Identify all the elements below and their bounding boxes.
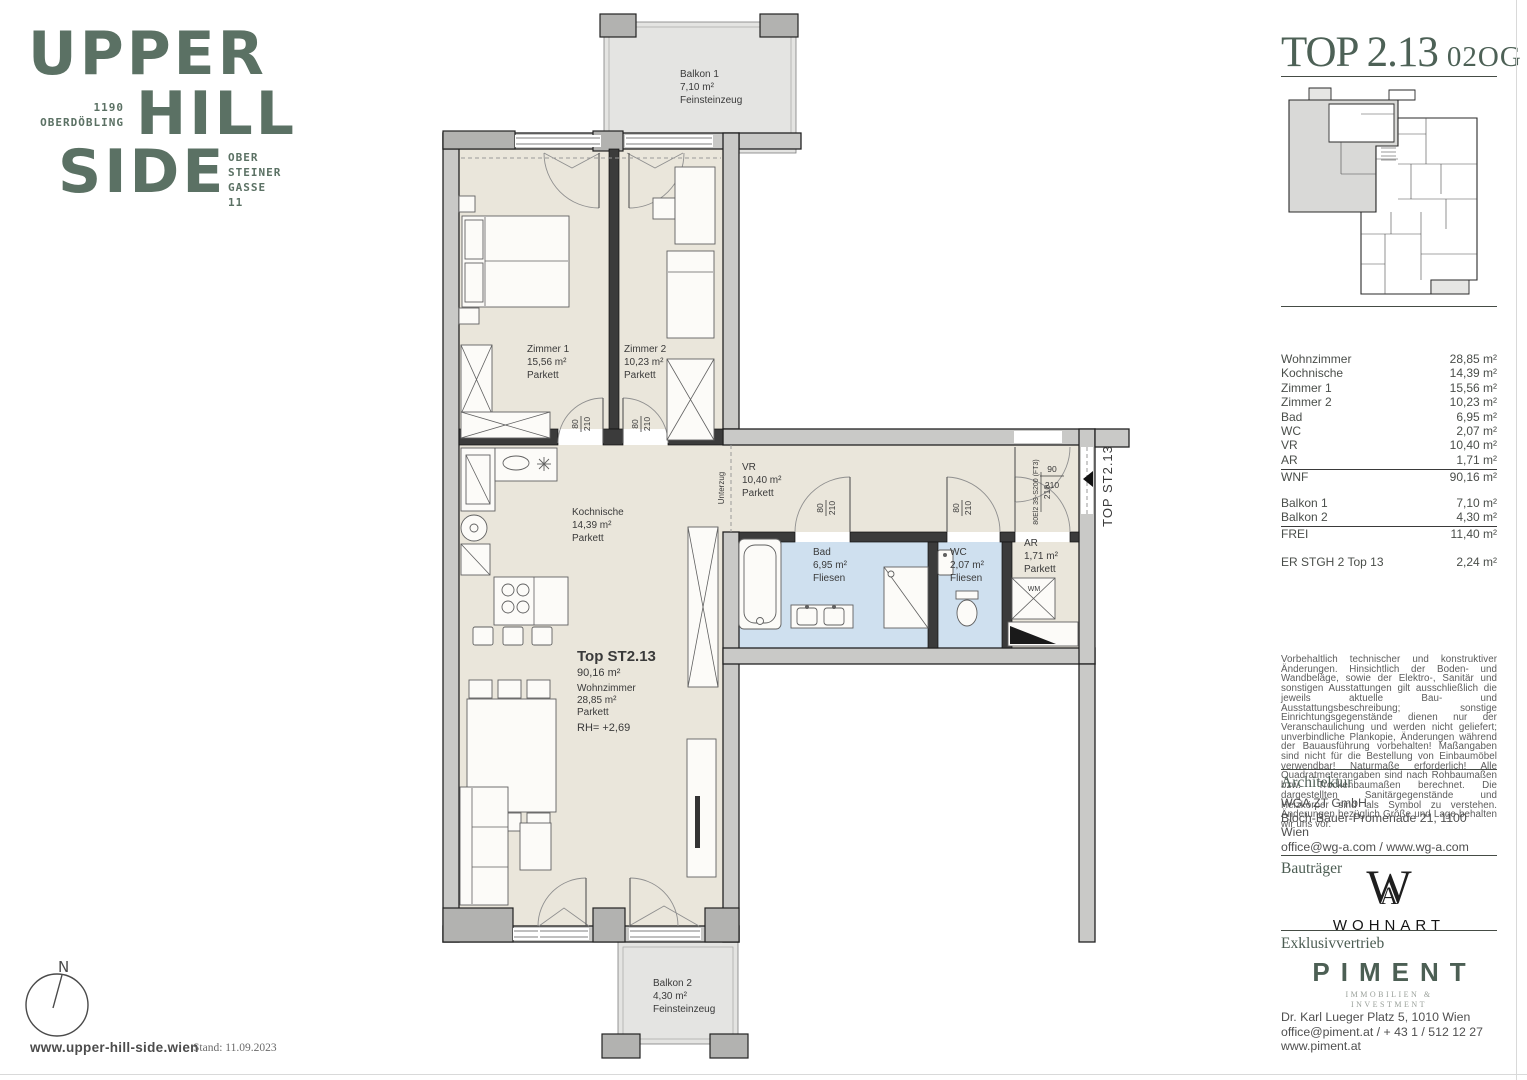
- svg-text:2,07 m²: 2,07 m²: [950, 560, 985, 571]
- plan-date: Stand: 11.09.2023: [193, 1042, 277, 1054]
- architektur-heading: Architektur: [1281, 774, 1352, 792]
- tv-icon: [695, 796, 700, 848]
- vertrieb-heading: Exklusivvertrieb: [1281, 935, 1384, 953]
- brand-address: OBER STEINER GASSE 11: [228, 150, 281, 210]
- cabinet-icon: [675, 167, 715, 244]
- divider: [1281, 855, 1497, 856]
- piment-contact: Dr. Karl Lueger Platz 5, 1010 Wien offic…: [1281, 1010, 1497, 1054]
- burner-icon: [502, 584, 514, 596]
- divider: [1281, 76, 1497, 77]
- svg-text:Parkett: Parkett: [742, 488, 774, 499]
- divider: [1281, 769, 1497, 770]
- brand-word-upper: UPPER: [28, 24, 267, 84]
- zimmer2-label: Zimmer 2: [624, 344, 667, 355]
- kochnische-label: Kochnische: [572, 507, 624, 518]
- compass-needle-icon: [53, 975, 62, 1008]
- table-row: AR1,71 m²: [1281, 453, 1497, 467]
- svg-text:Top ST2.13: Top ST2.13: [577, 648, 656, 665]
- page-edge: [0, 1074, 1527, 1075]
- chair-icon: [527, 680, 550, 698]
- svg-text:6,95 m²: 6,95 m²: [813, 560, 848, 571]
- svg-text:Wohnzimmer: Wohnzimmer: [577, 683, 636, 694]
- sofa-icon: [460, 787, 508, 905]
- burner-icon: [517, 584, 529, 596]
- page-edge: [1516, 0, 1517, 1080]
- tv-board-icon: [687, 739, 716, 877]
- shelf-icon: [653, 198, 675, 219]
- burner-icon: [502, 601, 514, 613]
- svg-text:RH= +2,69: RH= +2,69: [577, 722, 630, 734]
- table-row: Balkon 17,10 m²: [1281, 496, 1497, 510]
- info-panel: TOP 2.1302OG: [1281, 0, 1497, 1080]
- table-row: Balkon 24,30 m²: [1281, 510, 1497, 524]
- architektur-contact: office@wg-a.com / www.wg-a.com: [1281, 840, 1497, 855]
- svg-text:4,30 m²: 4,30 m²: [653, 991, 688, 1002]
- architektur-info: WGA ZT GmbH Bloch-Bauer-Promenade 21, 11…: [1281, 796, 1497, 854]
- stool-icon: [503, 627, 523, 645]
- svg-text:Unterzug: Unterzug: [717, 472, 726, 504]
- svg-text:TOP ST2.13: TOP ST2.13: [1100, 445, 1115, 527]
- cooktop-icon: [537, 457, 551, 471]
- wm-label: WM: [1028, 586, 1041, 593]
- wohnart-wordmark: WOHNART: [1281, 917, 1497, 934]
- bad-label: Bad: [813, 547, 831, 558]
- piment-phone: office@piment.at / + 43 1 / 512 12 27: [1281, 1025, 1497, 1040]
- nightstand-icon: [459, 308, 479, 324]
- svg-text:90: 90: [1047, 464, 1057, 474]
- wohnart-a-icon: A: [1380, 884, 1398, 909]
- coffee-table-icon: [520, 823, 551, 870]
- piment-wordmark: PIMENT: [1281, 958, 1497, 987]
- svg-text:14,39 m²: 14,39 m²: [572, 520, 612, 531]
- unterzug-label: Unterzug: [717, 472, 726, 504]
- table-row: VR10,40 m²: [1281, 438, 1497, 452]
- area-table: Wohnzimmer28,85 m² Kochnische14,39 m² Zi…: [1281, 352, 1497, 569]
- table-row-extra: ER STGH 2 Top 132,24 m²: [1281, 555, 1497, 569]
- piment-subline: INVESTMENT: [1281, 1000, 1497, 1010]
- chair-icon: [498, 680, 521, 698]
- divider: [1281, 306, 1497, 307]
- pillar-icon: [600, 14, 636, 37]
- burner-icon: [517, 601, 529, 613]
- svg-text:Parkett: Parkett: [577, 707, 609, 718]
- pillar-icon: [710, 1034, 748, 1058]
- website-link: www.upper-hill-side.wien: [30, 1040, 199, 1055]
- floorplan-sheet: UPPER HILL SIDE 1190 OBERDÖBLING OBER ST…: [0, 0, 1527, 1080]
- vr-label: VR: [742, 462, 756, 473]
- svg-text:28,85 m²: 28,85 m²: [577, 695, 617, 706]
- nightstand-icon: [459, 196, 475, 212]
- piment-subline: IMMOBILIEN &: [1281, 990, 1497, 1000]
- divider: [1281, 930, 1497, 931]
- svg-text:80El2 39-S200 (FT3): 80El2 39-S200 (FT3): [1033, 459, 1040, 524]
- entrance-tag: TOP ST2.13: [1100, 445, 1115, 527]
- floor-plan: 80 210 80 210 80 210 80 210 80El2 39-S20…: [430, 0, 1140, 1080]
- svg-text:210: 210: [1045, 480, 1059, 490]
- svg-text:Parkett: Parkett: [624, 370, 656, 381]
- svg-text:10,23 m²: 10,23 m²: [624, 357, 664, 368]
- svg-text:210: 210: [642, 417, 652, 431]
- single-bed-icon: [667, 251, 714, 338]
- table-row: Zimmer 115,56 m²: [1281, 381, 1497, 395]
- washbasin-icon: [797, 608, 817, 625]
- piment-address: Dr. Karl Lueger Platz 5, 1010 Wien: [1281, 1010, 1497, 1025]
- wohnart-logo: W A WOHNART: [1281, 868, 1497, 934]
- piment-website: www.piment.at: [1281, 1039, 1497, 1054]
- washbasin-icon: [824, 608, 844, 625]
- kitchen-island-icon: [494, 577, 568, 625]
- compass: N: [20, 958, 110, 1053]
- svg-text:Fliesen: Fliesen: [813, 573, 845, 584]
- chair-icon: [469, 680, 492, 698]
- table-row: Zimmer 210,23 m²: [1281, 395, 1497, 409]
- table-row: Wohnzimmer28,85 m²: [1281, 352, 1497, 366]
- pillar-icon: [760, 14, 798, 37]
- svg-text:Fliesen: Fliesen: [950, 573, 982, 584]
- wc-label: WC: [950, 547, 967, 558]
- brand-word-side: SIDE: [58, 142, 226, 202]
- svg-text:90,16 m²: 90,16 m²: [577, 667, 621, 679]
- stool-icon: [532, 627, 552, 645]
- balkon1-label: Balkon 1: [680, 69, 719, 80]
- balkon2-label: Balkon 2: [653, 978, 692, 989]
- stool-icon: [473, 627, 493, 645]
- brand-district: 1190 OBERDÖBLING: [30, 100, 124, 130]
- brand-word-hill: HILL: [136, 84, 297, 144]
- zimmer1-label: Zimmer 1: [527, 344, 570, 355]
- architektur-address: Bloch-Bauer-Promenade 21, 1100 Wien: [1281, 811, 1497, 840]
- svg-text:210: 210: [827, 501, 837, 515]
- svg-text:210: 210: [582, 417, 592, 431]
- svg-text:80: 80: [570, 419, 580, 429]
- svg-text:Parkett: Parkett: [1024, 564, 1056, 575]
- key-plan: [1281, 84, 1497, 304]
- table-row-wnf: WNF90,16 m²: [1281, 470, 1497, 484]
- svg-text:10,40 m²: 10,40 m²: [742, 475, 782, 486]
- table-row: Kochnische14,39 m²: [1281, 366, 1497, 380]
- svg-text:80: 80: [951, 503, 961, 513]
- svg-text:Parkett: Parkett: [572, 533, 604, 544]
- table-row: WC2,07 m²: [1281, 424, 1497, 438]
- svg-text:210: 210: [963, 501, 973, 515]
- piment-logo: PIMENT IMMOBILIEN & INVESTMENT: [1281, 958, 1497, 1010]
- architektur-name: WGA ZT GmbH: [1281, 796, 1497, 811]
- ar-label: AR: [1024, 538, 1038, 549]
- table-row: Bad6,95 m²: [1281, 410, 1497, 424]
- toilet-icon: [956, 591, 978, 599]
- unit-title: TOP 2.1302OG: [1281, 31, 1522, 74]
- svg-text:15,56 m²: 15,56 m²: [527, 357, 567, 368]
- svg-text:80: 80: [815, 503, 825, 513]
- table-row-frei: FREI11,40 m²: [1281, 527, 1497, 541]
- svg-text:Feinsteinzeug: Feinsteinzeug: [680, 95, 742, 106]
- unit-title-text: TOP 2.13: [1281, 29, 1438, 76]
- svg-text:80: 80: [630, 419, 640, 429]
- svg-text:Parkett: Parkett: [527, 370, 559, 381]
- svg-text:Feinsteinzeug: Feinsteinzeug: [653, 1004, 715, 1015]
- svg-text:1,71 m²: 1,71 m²: [1024, 551, 1059, 562]
- svg-text:7,10 m²: 7,10 m²: [680, 82, 715, 93]
- sink-icon: [503, 456, 529, 470]
- compass-n-label: N: [58, 958, 69, 976]
- floor-tag: 02OG: [1447, 41, 1522, 73]
- pillar-icon: [602, 1034, 640, 1058]
- vr-floor: [723, 445, 1079, 532]
